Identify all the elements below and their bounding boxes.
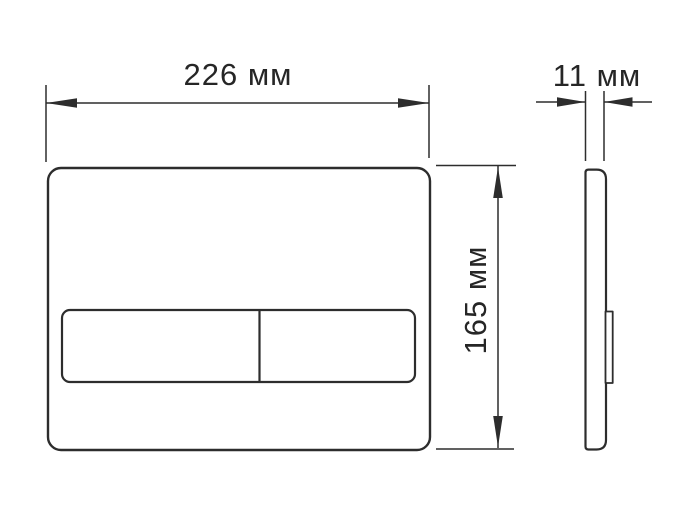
flush-button-panel [62, 310, 415, 382]
technical-drawing-canvas: 226 мм 11 мм 165 мм [0, 0, 678, 509]
depth-arrow-left-icon [557, 97, 586, 107]
plate-linework [48, 168, 613, 450]
side-view-button-profile [606, 312, 613, 384]
height-arrow-top-icon [493, 167, 503, 198]
depth-dimension-label: 11 мм [553, 58, 641, 93]
flush-plate-drawing: 226 мм 11 мм 165 мм [0, 0, 678, 509]
width-arrow-left-icon [46, 98, 77, 108]
side-view-plate [586, 170, 607, 450]
width-dimension-label: 226 мм [184, 57, 293, 92]
height-arrow-bottom-icon [493, 416, 503, 447]
height-dimension-label: 165 мм [458, 246, 493, 355]
width-arrow-right-icon [398, 98, 429, 108]
depth-arrow-right-icon [604, 97, 633, 107]
